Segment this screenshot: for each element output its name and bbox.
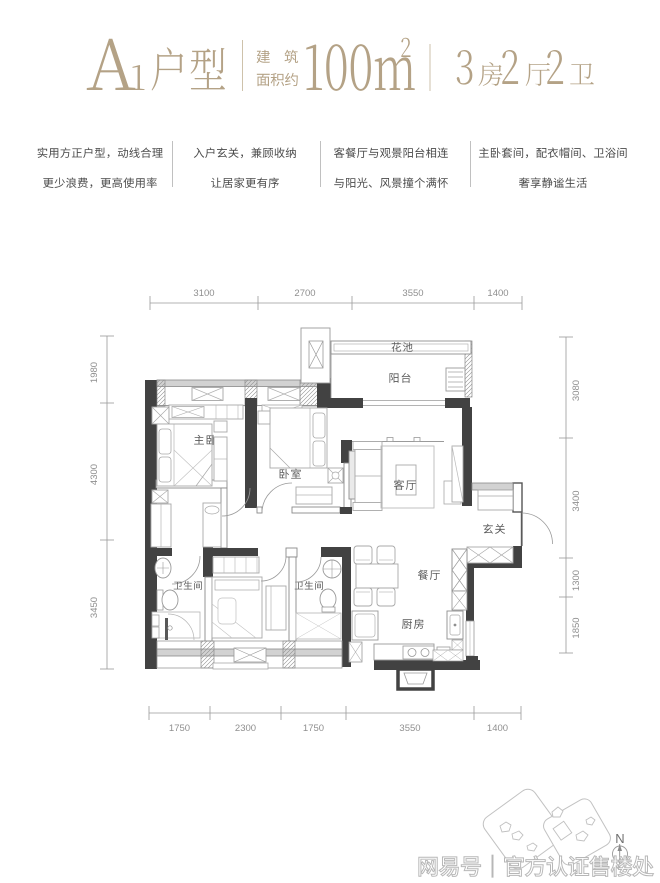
svg-text:3100: 3100: [193, 288, 214, 299]
svg-text:1400: 1400: [487, 288, 508, 299]
svg-text:1750: 1750: [303, 723, 324, 734]
svg-text:4300: 4300: [89, 464, 100, 485]
svg-text:1300: 1300: [571, 570, 582, 591]
svg-text:3550: 3550: [402, 288, 423, 299]
svg-text:3450: 3450: [89, 597, 100, 618]
svg-text:3080: 3080: [571, 380, 582, 401]
svg-text:N: N: [615, 831, 624, 846]
svg-text:1750: 1750: [169, 723, 190, 734]
svg-text:1400: 1400: [487, 723, 508, 734]
svg-text:3550: 3550: [399, 723, 420, 734]
svg-text:2700: 2700: [294, 288, 315, 299]
svg-text:2300: 2300: [235, 723, 256, 734]
svg-text:1850: 1850: [571, 617, 582, 638]
svg-text:3400: 3400: [571, 490, 582, 511]
svg-text:1980: 1980: [89, 362, 100, 383]
